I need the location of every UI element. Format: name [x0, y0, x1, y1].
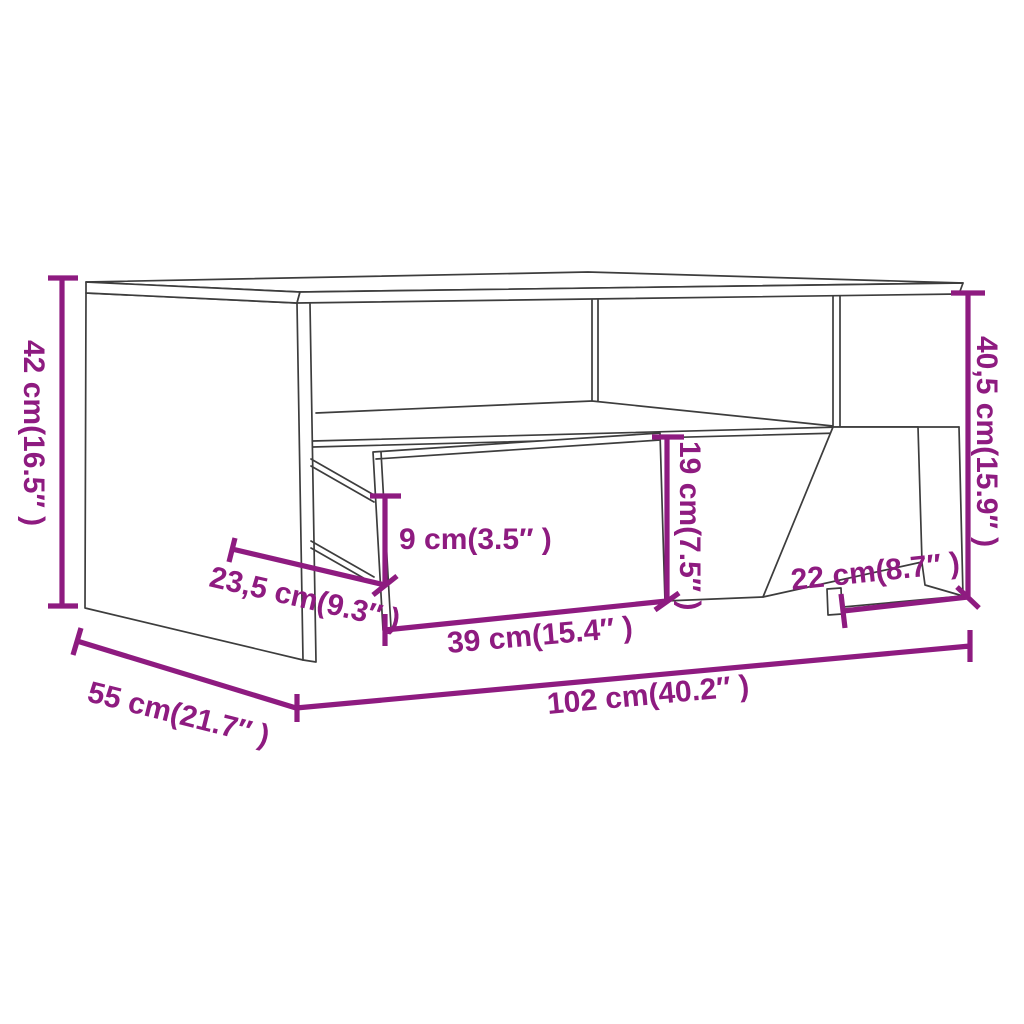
coffee-table-dimension-drawing: 42 cm(16.5″ ) 40,5 cm(15.9″ ) 55 cm(21.7…	[0, 0, 1024, 1024]
drawer-rails	[311, 459, 374, 584]
dimension-label: 42 cm(16.5″ )	[17, 340, 50, 526]
dimension-diagram: 42 cm(16.5″ ) 40,5 cm(15.9″ ) 55 cm(21.7…	[0, 0, 1024, 1024]
dimension-height: 42 cm(16.5″ )	[17, 278, 78, 606]
dimension-label: 9 cm(3.5″ )	[399, 523, 552, 556]
dimension-label: 55 cm(21.7″ )	[84, 676, 273, 753]
dimension-line	[841, 594, 968, 628]
dimension-label: 40,5 cm(15.9″ )	[970, 336, 1003, 547]
dimension-line	[48, 278, 78, 606]
coffee-table-drawing	[85, 272, 963, 662]
dimension-label: 19 cm(7.5″ )	[673, 441, 706, 610]
compartment-divider	[592, 288, 840, 427]
